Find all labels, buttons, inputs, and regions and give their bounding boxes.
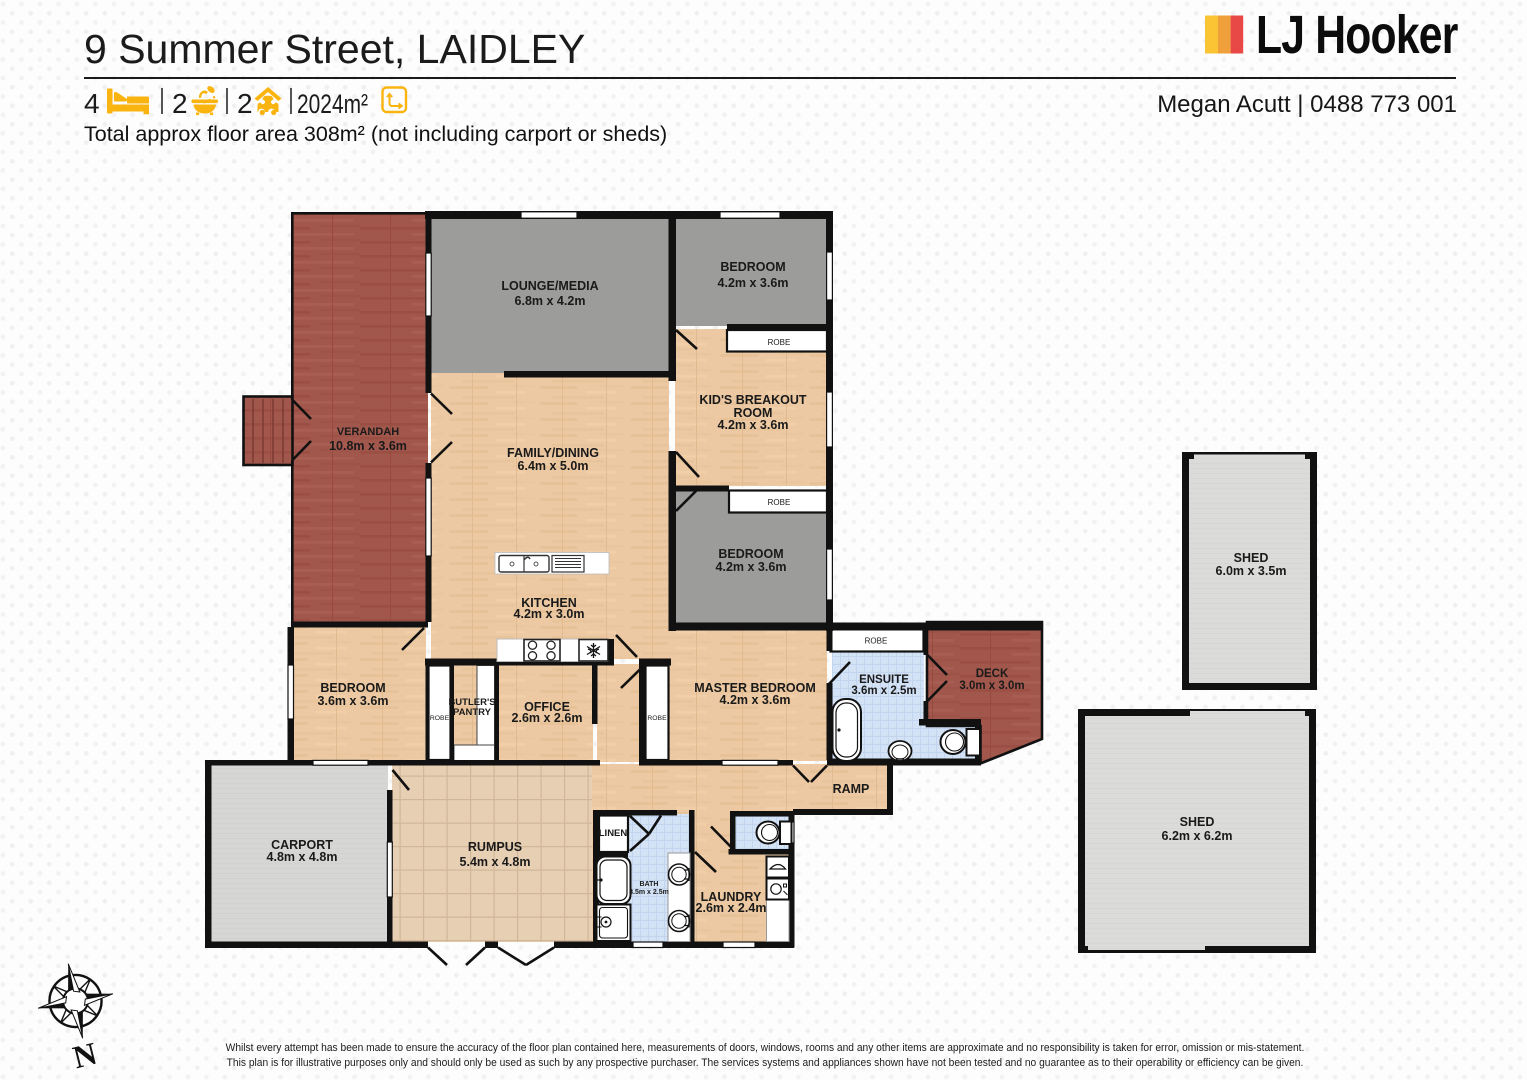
svg-text:LOUNGE/MEDIA: LOUNGE/MEDIA	[501, 279, 598, 293]
svg-text:LINEN: LINEN	[599, 828, 628, 839]
svg-text:6.8m x 4.2m: 6.8m x 4.2m	[515, 294, 586, 308]
svg-text:3.6m x 2.5m: 3.6m x 2.5m	[851, 685, 916, 697]
svg-text:10.8m x 3.6m: 10.8m x 3.6m	[329, 439, 407, 453]
svg-text:4: 4	[84, 88, 100, 119]
svg-text:BEDROOM: BEDROOM	[720, 260, 785, 274]
svg-text:ROBE: ROBE	[768, 338, 791, 347]
svg-text:PANTRY: PANTRY	[453, 707, 492, 718]
svg-text:4.8m x 4.8m: 4.8m x 4.8m	[267, 850, 338, 864]
svg-text:ROBE: ROBE	[865, 637, 888, 646]
svg-text:BATH: BATH	[640, 881, 659, 888]
svg-text:DECK: DECK	[976, 668, 1009, 680]
svg-text:2.6m x 2.6m: 2.6m x 2.6m	[512, 711, 583, 725]
svg-text:4.2m x 3.6m: 4.2m x 3.6m	[720, 693, 791, 707]
svg-text:3.5m x 2.5m: 3.5m x 2.5m	[629, 889, 669, 896]
svg-text:VERANDAH: VERANDAH	[337, 426, 399, 438]
svg-text:5.4m x 4.8m: 5.4m x 4.8m	[460, 855, 531, 869]
svg-text:ROBE: ROBE	[768, 498, 791, 507]
svg-text:RAMP: RAMP	[833, 782, 870, 796]
svg-text:2: 2	[237, 88, 253, 119]
svg-text:6.4m x 5.0m: 6.4m x 5.0m	[518, 459, 589, 473]
svg-text:2024m²: 2024m²	[297, 89, 368, 119]
svg-text:6.0m x 3.5m: 6.0m x 3.5m	[1216, 564, 1287, 578]
svg-text:ROBE: ROBE	[430, 715, 450, 722]
svg-text:4.2m x 3.6m: 4.2m x 3.6m	[718, 418, 789, 432]
svg-text:6.2m x 6.2m: 6.2m x 6.2m	[1162, 829, 1233, 843]
svg-text:4.2m x 3.0m: 4.2m x 3.0m	[514, 607, 585, 621]
svg-text:3.0m x 3.0m: 3.0m x 3.0m	[959, 680, 1024, 692]
svg-text:ROBE: ROBE	[647, 715, 667, 722]
svg-text:SHED: SHED	[1180, 815, 1215, 829]
svg-text:2: 2	[172, 88, 188, 119]
svg-text:BEDROOM: BEDROOM	[320, 681, 385, 695]
svg-text:4.2m x 3.6m: 4.2m x 3.6m	[718, 276, 789, 290]
svg-text:RUMPUS: RUMPUS	[468, 840, 522, 854]
svg-text:N: N	[69, 1035, 100, 1076]
svg-text:BEDROOM: BEDROOM	[718, 547, 783, 561]
svg-text:SHED: SHED	[1234, 551, 1269, 565]
svg-text:4.2m x 3.6m: 4.2m x 3.6m	[716, 560, 787, 574]
svg-text:KID'S BREAKOUT: KID'S BREAKOUT	[699, 393, 807, 407]
svg-text:FAMILY/DINING: FAMILY/DINING	[507, 446, 599, 460]
svg-text:3.6m x 3.6m: 3.6m x 3.6m	[318, 694, 389, 708]
svg-text:2.6m x 2.4m: 2.6m x 2.4m	[696, 901, 767, 915]
